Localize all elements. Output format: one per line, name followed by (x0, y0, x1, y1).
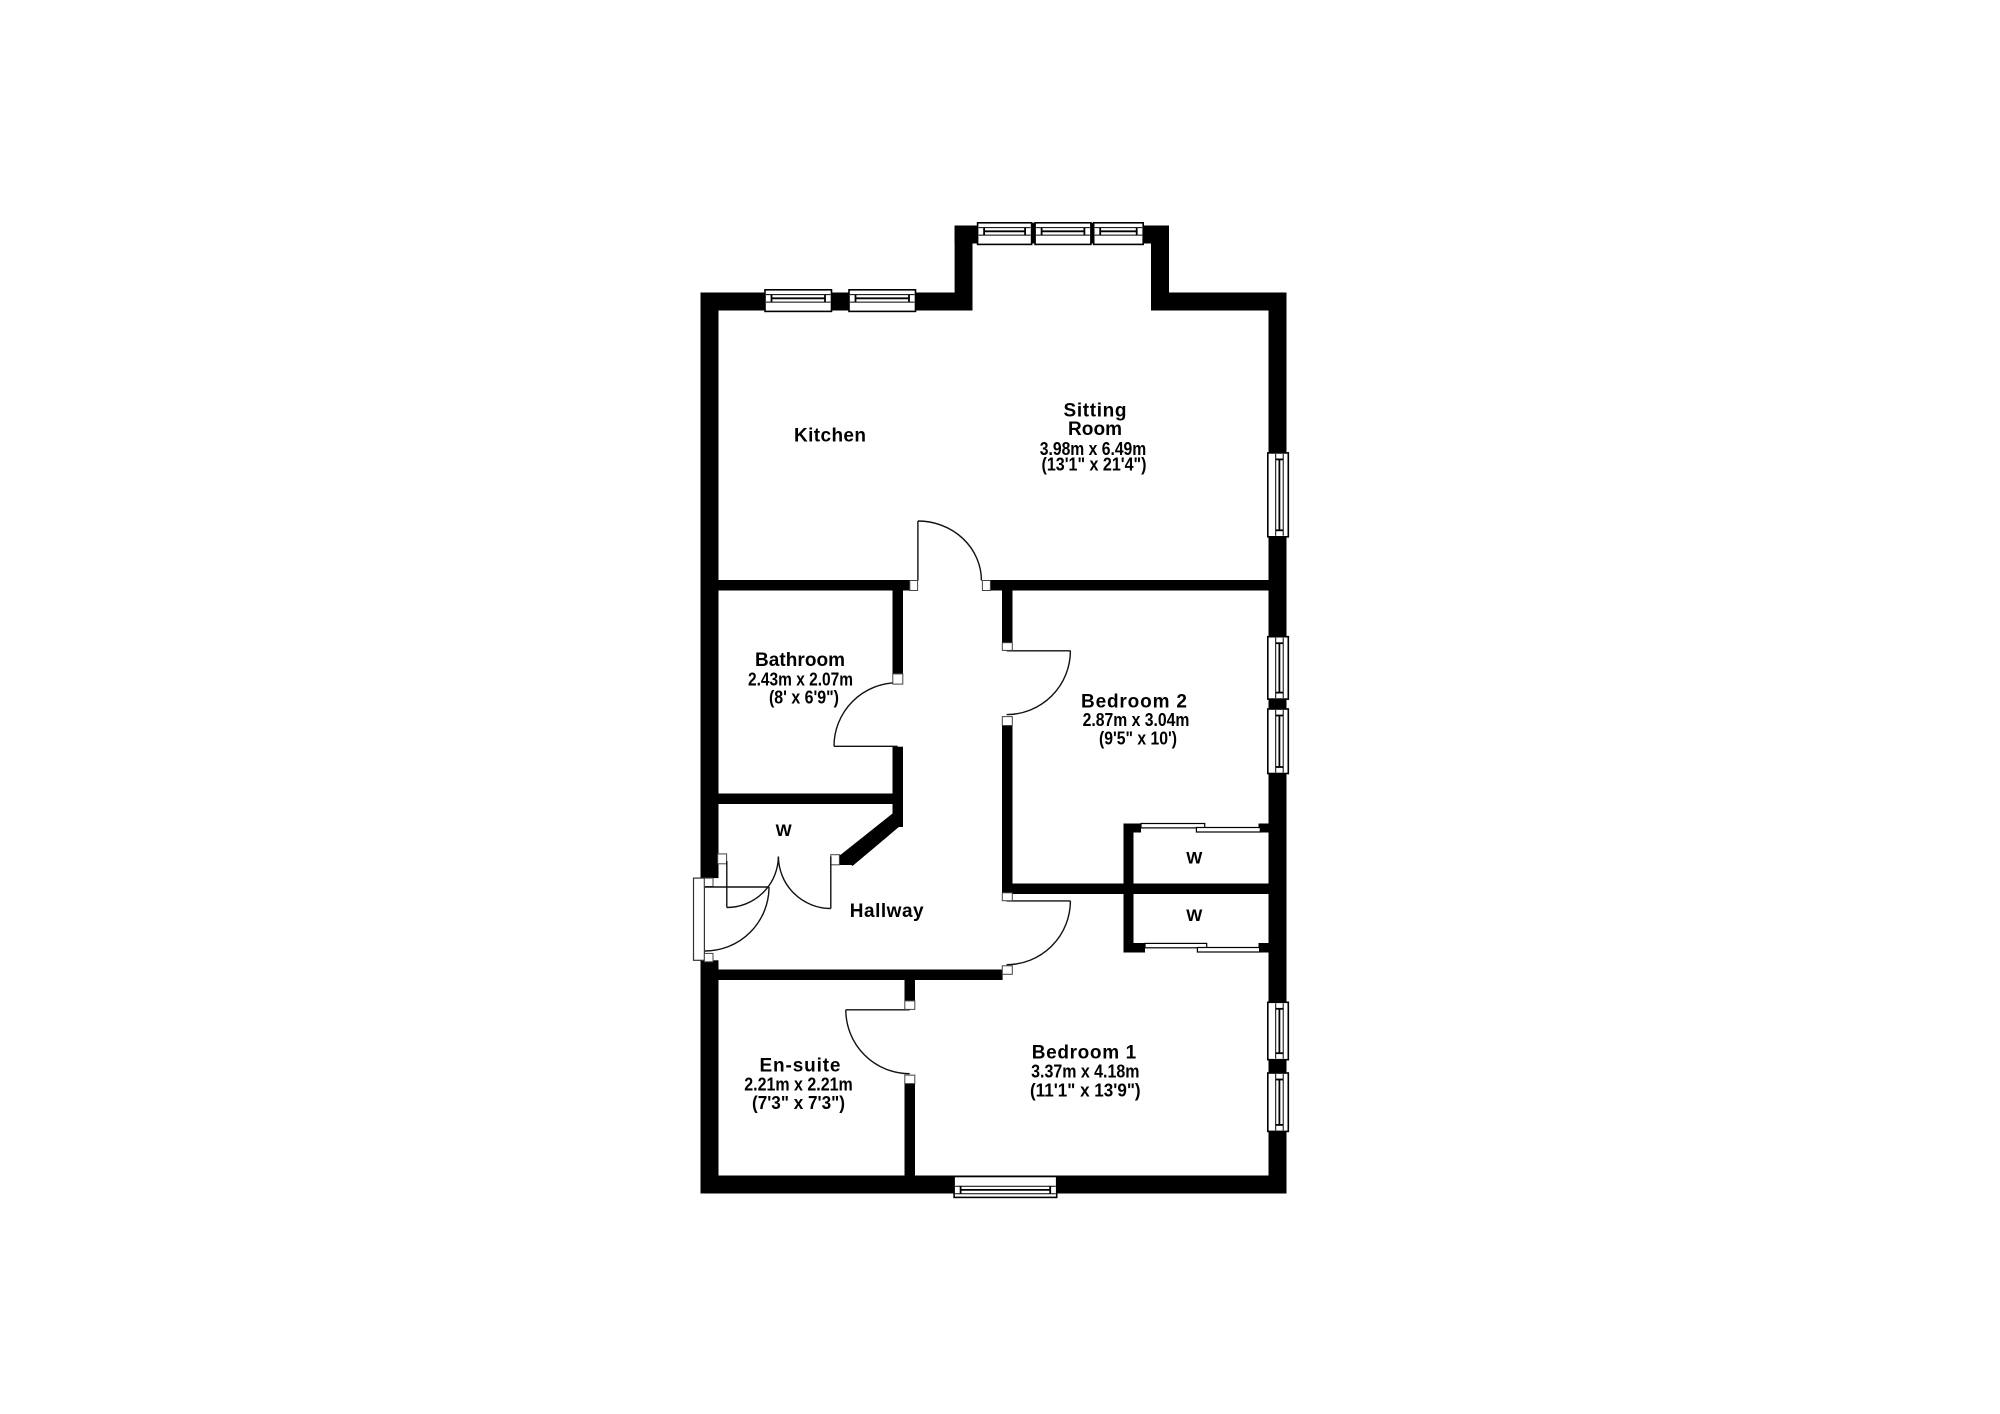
svg-text:Kitchen: Kitchen (794, 426, 866, 447)
svg-text:2.21m x 2.21m: 2.21m x 2.21m (744, 1075, 853, 1095)
svg-text:Hallway: Hallway (850, 901, 924, 922)
svg-text:(11'1" x 13'9"): (11'1" x 13'9") (1030, 1081, 1141, 1101)
svg-text:W: W (1186, 906, 1203, 925)
svg-text:W: W (776, 821, 793, 840)
svg-text:Bedroom 1: Bedroom 1 (1032, 1043, 1137, 1064)
svg-text:3.37m x 4.18m: 3.37m x 4.18m (1031, 1062, 1139, 1082)
svg-text:(7'3" x 7'3"): (7'3" x 7'3") (752, 1093, 845, 1113)
svg-text:2.43m x 2.07m: 2.43m x 2.07m (748, 670, 853, 690)
svg-text:2.87m x 3.04m: 2.87m x 3.04m (1083, 710, 1190, 730)
svg-text:(8' x 6'9"): (8' x 6'9") (769, 688, 839, 708)
svg-text:En-suite: En-suite (760, 1056, 841, 1077)
svg-text:(13'1" x 21'4"): (13'1" x 21'4") (1042, 455, 1147, 475)
svg-text:W: W (1186, 849, 1203, 868)
svg-text:Room: Room (1068, 419, 1122, 440)
svg-text:(9'5" x 10'): (9'5" x 10') (1099, 729, 1177, 749)
svg-text:Bathroom: Bathroom (755, 650, 845, 671)
